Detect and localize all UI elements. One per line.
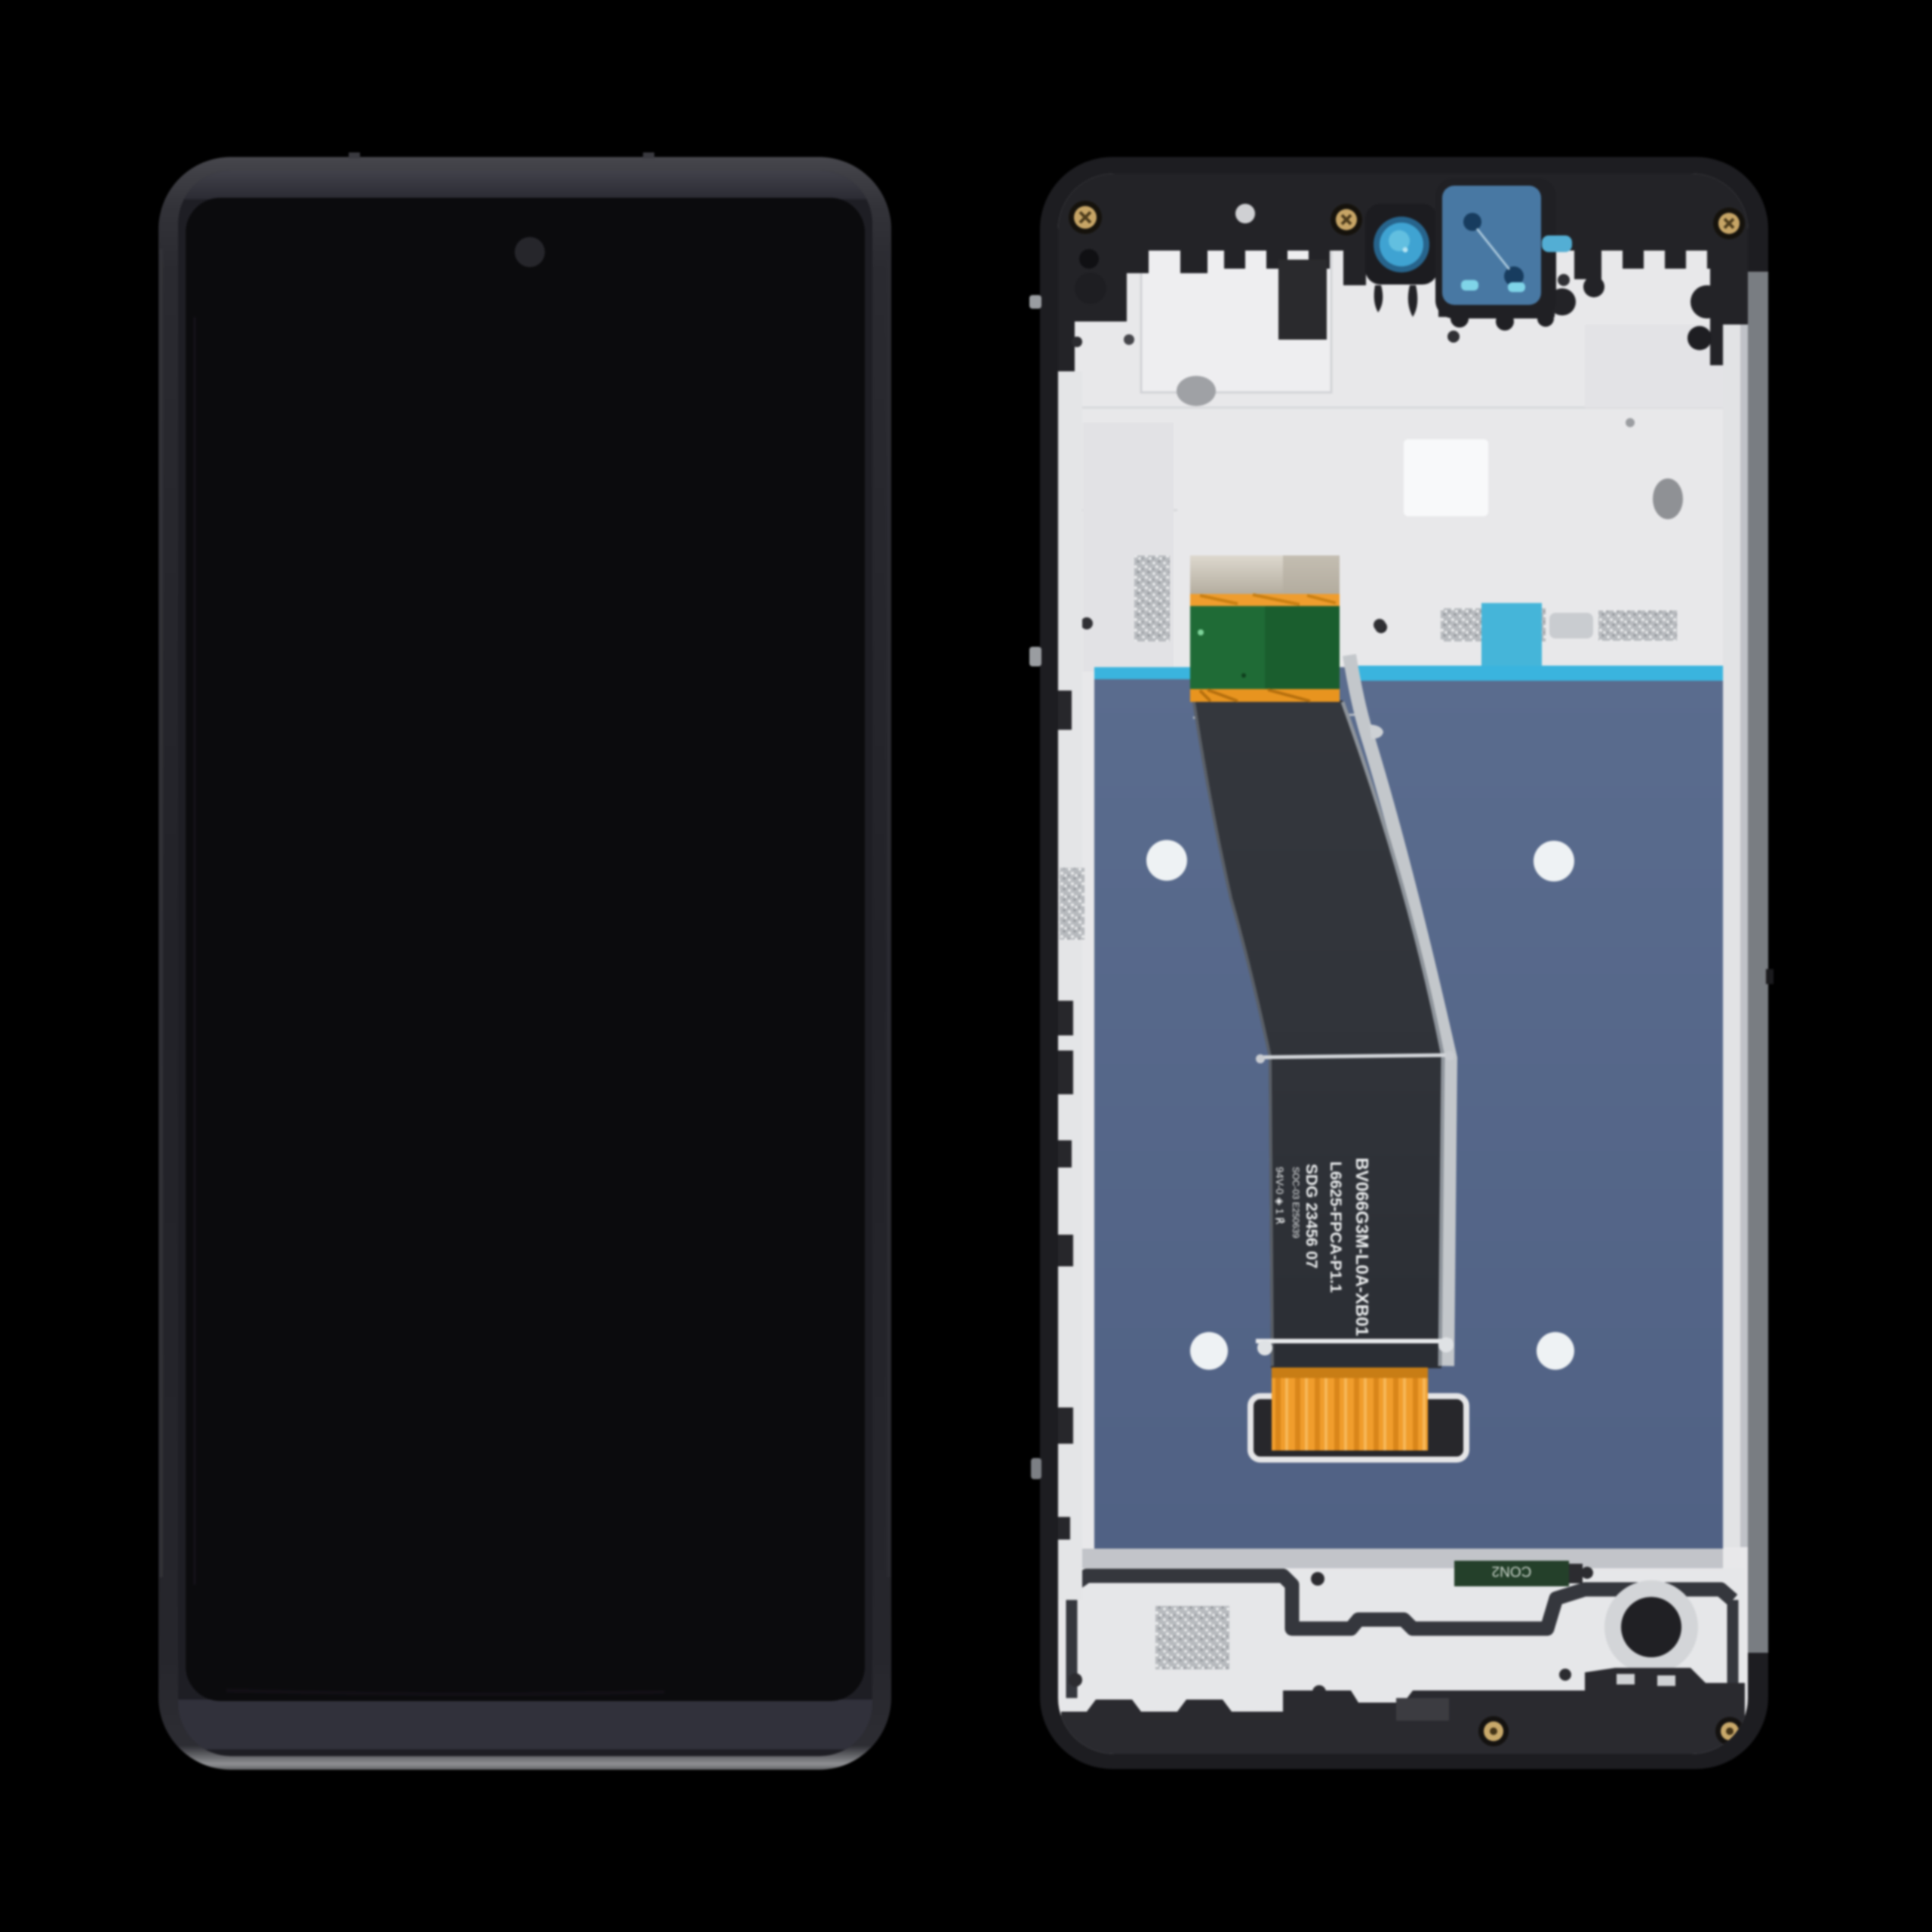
- svg-text:SDG 23456 07: SDG 23456 07: [1303, 1164, 1320, 1269]
- svg-text:94V-0 ◈ 1 ℟: 94V-0 ◈ 1 ℟: [1274, 1167, 1286, 1225]
- svg-text:L6625-FPCA-P1.1: L6625-FPCA-P1.1: [1327, 1161, 1344, 1293]
- svg-text:BV066G3M-L0A-XB01: BV066G3M-L0A-XB01: [1352, 1158, 1372, 1337]
- svg-text:CON2: CON2: [1492, 1563, 1532, 1579]
- svg-text:SOC-03 E250639: SOC-03 E250639: [1291, 1167, 1301, 1238]
